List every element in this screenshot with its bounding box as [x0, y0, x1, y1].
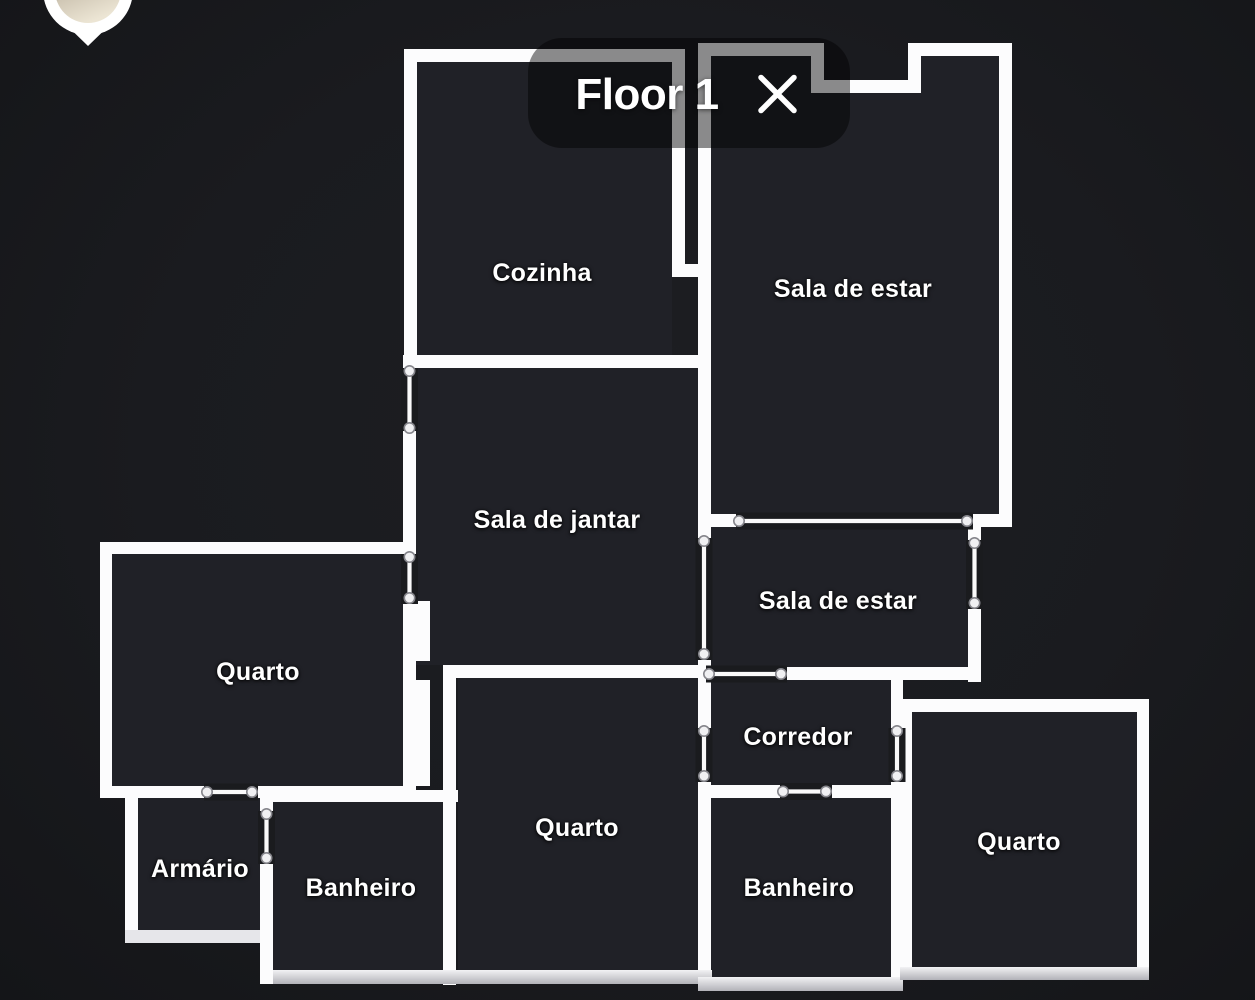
- door-marker: [696, 536, 713, 660]
- room-label-sala-de-estar-1: Sala de estar: [774, 275, 932, 303]
- map-pin[interactable]: [43, 0, 133, 46]
- door-marker: [202, 784, 258, 801]
- room-label-banheiro-2: Banheiro: [744, 874, 855, 902]
- floor-title: Floor 1: [575, 70, 718, 119]
- room-label-corredor: Corredor: [743, 723, 852, 751]
- room-label-quarto-leste: Quarto: [977, 828, 1061, 856]
- room-label-cozinha: Cozinha: [492, 259, 592, 287]
- door-marker: [778, 783, 832, 800]
- door-marker: [734, 513, 973, 530]
- floor-plan-canvas: Floor 1 Cozinha Sala de estar Sala de ja…: [0, 0, 1255, 1000]
- door-marker: [401, 366, 418, 433]
- door-marker: [889, 726, 906, 782]
- floor-plan-view: Floor 1 Cozinha Sala de estar Sala de ja…: [0, 0, 1255, 1000]
- room-label-quarto-oeste: Quarto: [216, 658, 300, 686]
- room-label-banheiro-1: Banheiro: [306, 874, 417, 902]
- door-marker: [704, 666, 787, 683]
- room-label-quarto-centro: Quarto: [535, 814, 619, 842]
- door-marker: [966, 538, 983, 609]
- room-label-armario: Armário: [151, 855, 249, 883]
- room-label-sala-de-estar-2: Sala de estar: [759, 587, 917, 615]
- room-label-sala-de-jantar: Sala de jantar: [474, 506, 641, 534]
- door-marker: [401, 552, 418, 604]
- floor-selector[interactable]: Floor 1: [528, 38, 850, 148]
- door-marker: [258, 809, 275, 864]
- door-marker: [696, 726, 713, 782]
